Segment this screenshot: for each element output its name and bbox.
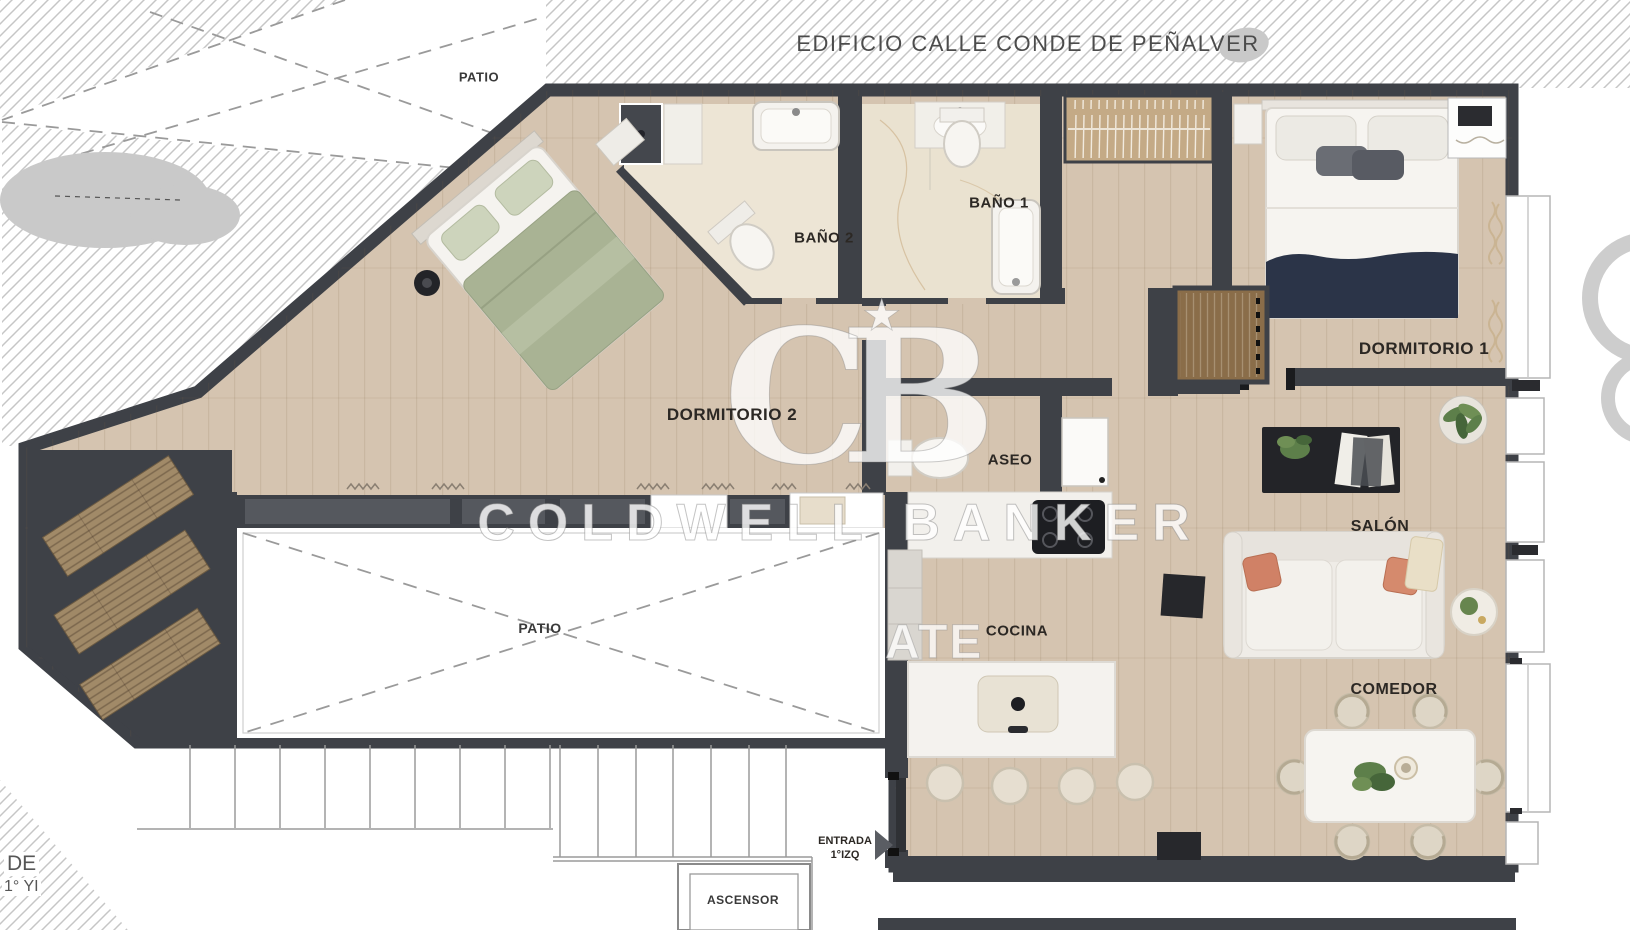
nightstand-left [1234, 104, 1262, 144]
sofa [1224, 532, 1444, 658]
floorplan-canvas: CB ★ COLDWELL BANKER ATE EDIFICIO CALLE … [0, 0, 1630, 930]
building-title: EDIFICIO CALLE CONDE DE PEÑALVER [796, 31, 1259, 57]
tv-console [1262, 427, 1400, 493]
room-label-comedor: COMEDOR [1350, 681, 1437, 699]
navy-duvet [1266, 252, 1458, 318]
room-label-dormitorio1: DORMITORIO 1 [1359, 339, 1489, 359]
entrance-line2: 1°IZQ [818, 848, 872, 862]
edge-text-line1: DE [4, 852, 39, 876]
bed-dorm1 [1262, 100, 1462, 318]
patio-top-label: PATIO [459, 70, 499, 85]
room-label-bano2: BAÑO 2 [794, 230, 854, 247]
plant-salon [1439, 396, 1487, 444]
entrance-line1: ENTRADA [818, 834, 872, 848]
bathtub-bano1 [992, 200, 1040, 294]
watermark-monogram: CB [723, 288, 987, 506]
room-label-salon: SALÓN [1351, 518, 1410, 536]
windows-right [1506, 196, 1550, 864]
side-table [1451, 589, 1497, 635]
edge-glyph [1590, 240, 1630, 438]
entrance-label: ENTRADA 1°IZQ [818, 834, 872, 862]
aseo-door [1062, 418, 1108, 486]
hall-wardrobe [1065, 96, 1213, 162]
bathtub-bano2 [753, 102, 839, 150]
floor-box [1157, 832, 1201, 860]
ascensor-label: ASCENSOR [707, 893, 779, 907]
patio-central-label: PATIO [518, 620, 561, 636]
bottom-strip [878, 918, 1516, 930]
closet-topright [1448, 98, 1506, 158]
watermark-star: ★ [862, 291, 901, 340]
watermark-fragment: ATE [885, 616, 983, 669]
room-label-aseo: ASEO [988, 452, 1033, 469]
edge-text-line2: 1° YI [2, 878, 41, 896]
storage-wing [28, 450, 232, 738]
room-label-bano1: BAÑO 1 [969, 195, 1029, 212]
floorplan-drawing: CB ★ COLDWELL BANKER ATE [0, 0, 1630, 930]
room-label-cocina: COCINA [986, 623, 1048, 640]
watermark-name: COLDWELL BANKER [477, 494, 1203, 552]
stool-cube [1161, 574, 1206, 619]
room-label-dormitorio2: DORMITORIO 2 [667, 405, 797, 425]
kitchen-island [908, 662, 1115, 757]
wardrobe-dorm1 [1175, 288, 1267, 382]
